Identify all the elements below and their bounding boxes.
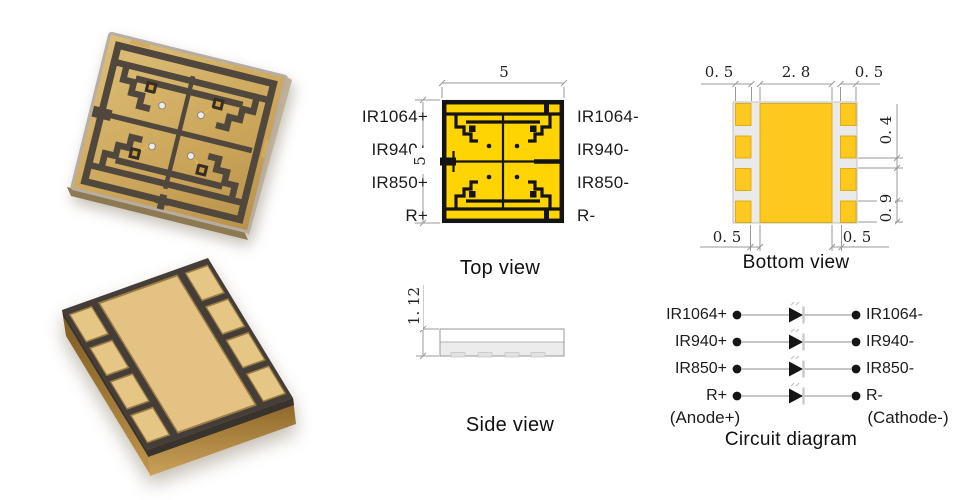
pin-label-ir1064-plus: IR1064+ bbox=[298, 106, 428, 128]
circuit-cathode-label: (Cathode-) bbox=[847, 408, 969, 428]
side-view-drawing bbox=[416, 285, 564, 359]
pin-label-ir940-plus: IR940+ bbox=[298, 139, 428, 161]
bottom-view-dim-right-lower: 0. 9 bbox=[877, 185, 895, 231]
top-view-dim-width: 5 bbox=[480, 63, 528, 81]
bottom-view-dim-right-upper: 0. 4 bbox=[877, 107, 895, 153]
pin-label-ir850-plus: IR850+ bbox=[298, 172, 428, 194]
circuit-diagram-graphic bbox=[733, 302, 861, 405]
circuit-label-ir1064-minus: IR1064- bbox=[866, 305, 970, 325]
bottom-view-dim-top-center: 2. 8 bbox=[772, 63, 820, 81]
pin-label-ir1064-minus: IR1064- bbox=[577, 106, 707, 128]
circuit-label-ir1064-plus: IR1064+ bbox=[617, 305, 727, 325]
circuit-label-r-minus: R- bbox=[866, 386, 970, 406]
bottom-view-dim-top-left: 0. 5 bbox=[695, 63, 743, 81]
top-view-caption: Top view bbox=[430, 257, 570, 280]
circuit-label-ir940-plus: IR940+ bbox=[617, 332, 727, 352]
side-view-dim-height: 1. 12 bbox=[405, 282, 423, 330]
pin-label-ir850-minus: IR850- bbox=[577, 172, 707, 194]
circuit-anode-label: (Anode+) bbox=[645, 408, 765, 428]
top-view-dim-height: 5 bbox=[411, 148, 429, 174]
bottom-view-dim-bottom-left: 0. 5 bbox=[703, 228, 751, 246]
pin-label-r-plus: R+ bbox=[298, 205, 428, 227]
datasheet-page: IR1064+ IR940+ IR850+ R+ IR1064- IR940- … bbox=[0, 0, 970, 500]
bottom-photo bbox=[62, 258, 296, 476]
bottom-view-drawing bbox=[700, 81, 903, 251]
top-view-drawing bbox=[415, 80, 567, 226]
top-photo bbox=[67, 33, 292, 240]
circuit-label-ir940-minus: IR940- bbox=[866, 332, 970, 352]
pin-label-r-minus: R- bbox=[577, 205, 707, 227]
circuit-label-r-plus: R+ bbox=[617, 386, 727, 406]
bottom-view-caption: Bottom view bbox=[726, 252, 866, 274]
circuit-label-ir850-plus: IR850+ bbox=[617, 359, 727, 379]
circuit-label-ir850-minus: IR850- bbox=[866, 359, 970, 379]
circuit-caption: Circuit diagram bbox=[711, 429, 871, 451]
bottom-view-dim-top-right: 0. 5 bbox=[845, 63, 893, 81]
bottom-view-dim-bottom-right: 0. 5 bbox=[833, 228, 881, 246]
pin-label-ir940-minus: IR940- bbox=[577, 139, 707, 161]
side-view-caption: Side view bbox=[440, 414, 580, 437]
